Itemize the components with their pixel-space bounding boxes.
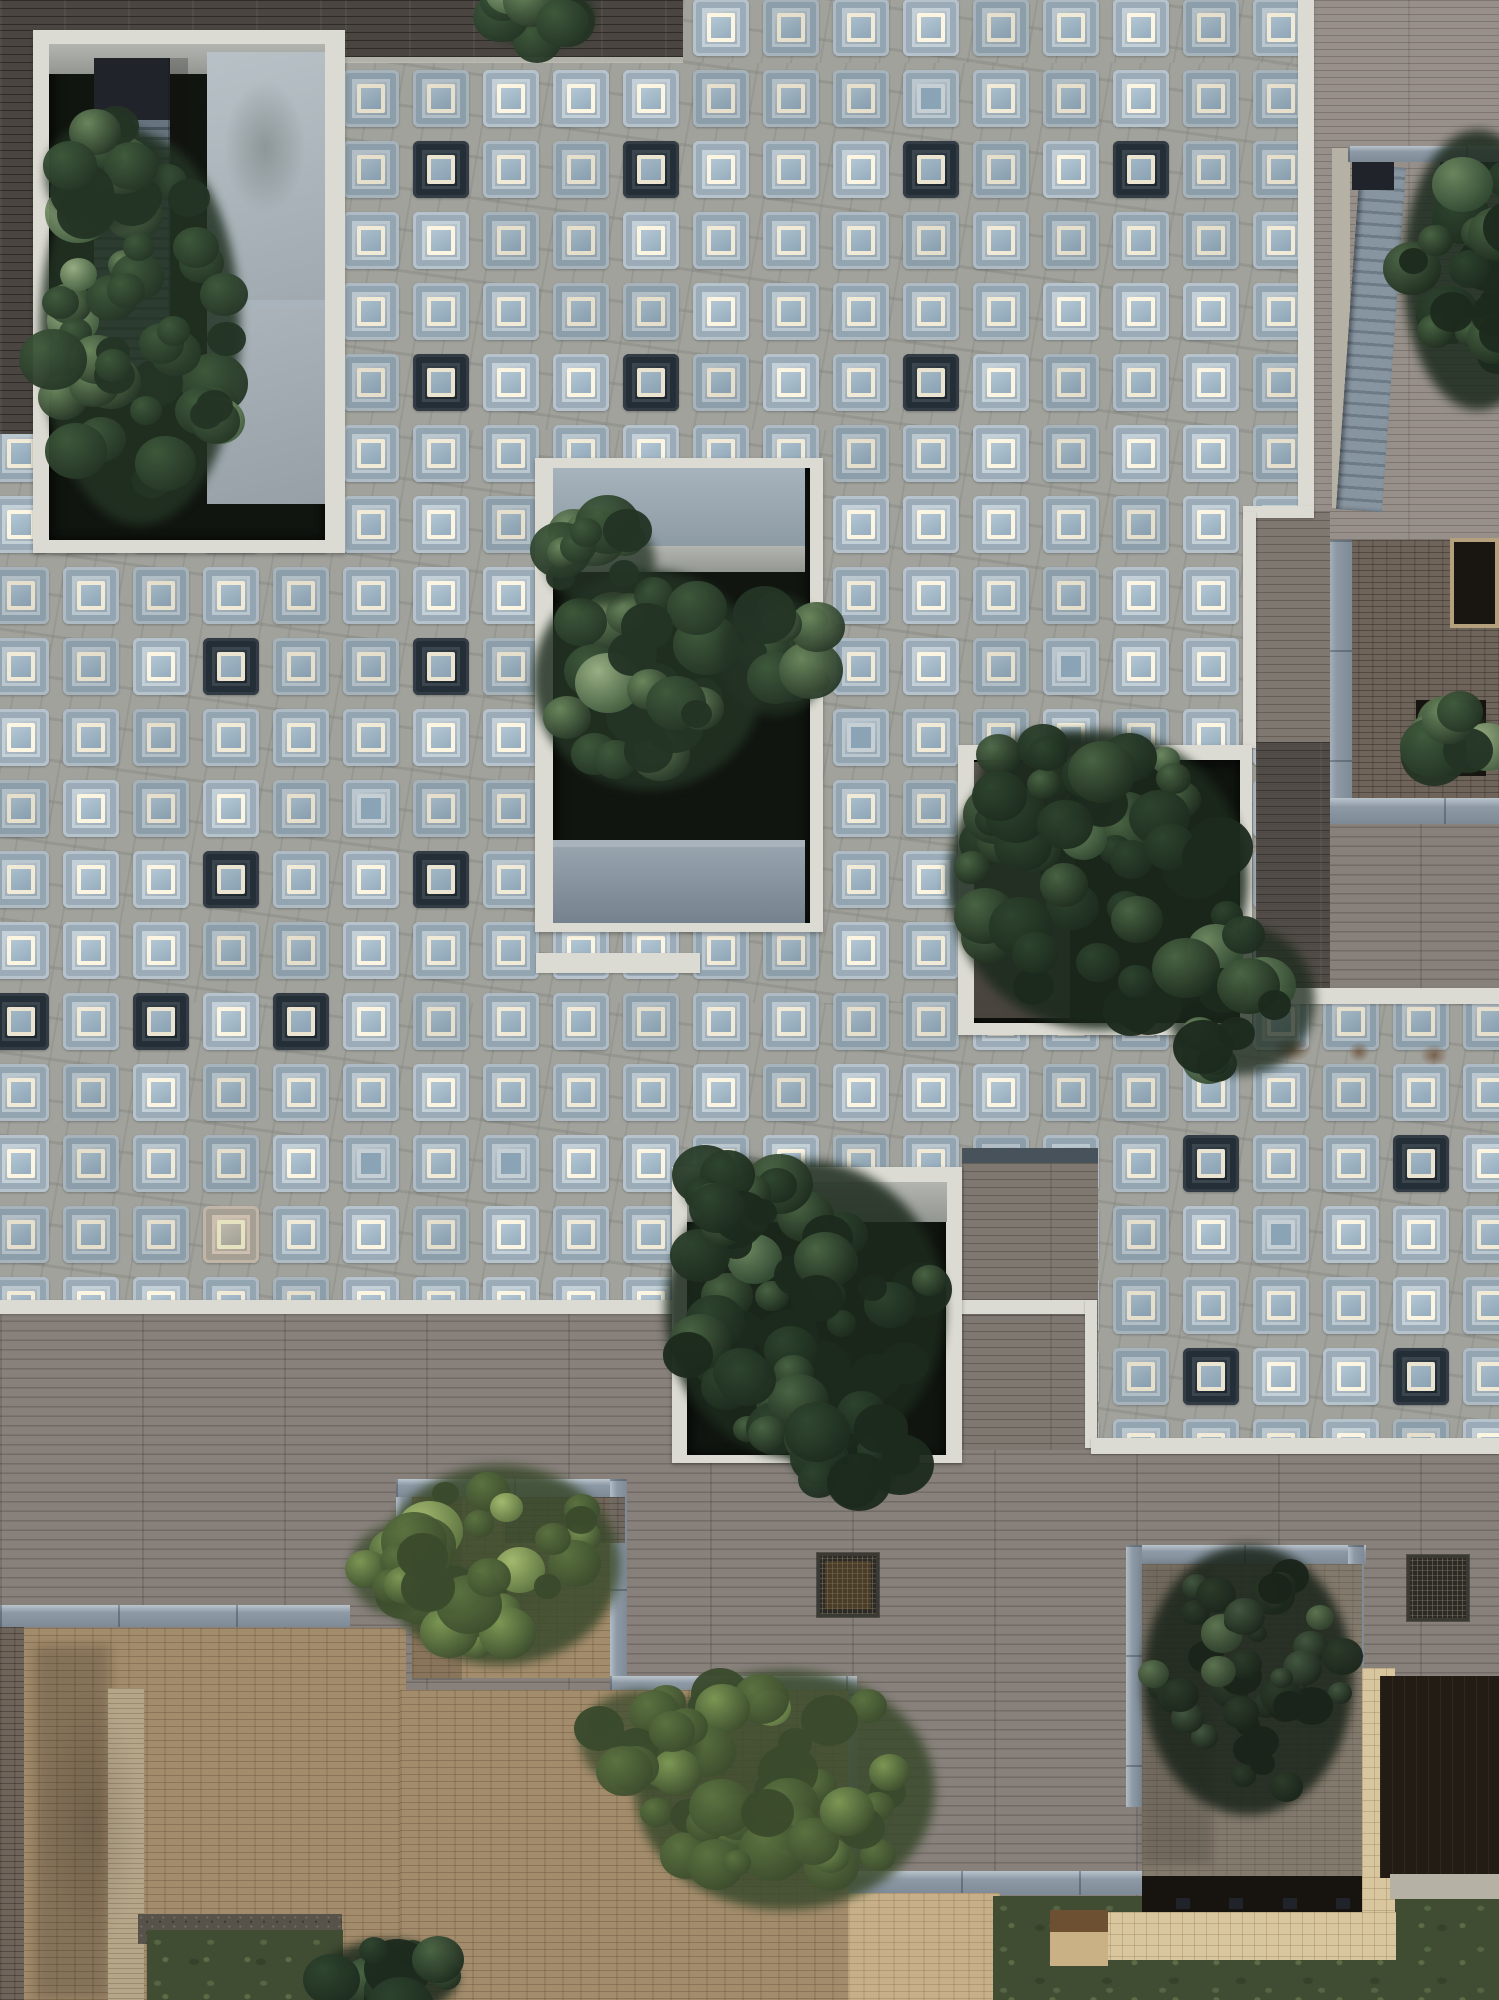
skylight-tile (973, 283, 1029, 340)
skylight-tile (623, 993, 679, 1003)
shadow-tree-center (600, 1680, 940, 1930)
skylight-tile (63, 993, 119, 1003)
soil-stain-3 (1420, 1044, 1448, 1066)
skylight-tile (483, 638, 539, 695)
glass-roof-top (553, 468, 805, 546)
skylight-tile (203, 1206, 259, 1263)
planter-drain-3 (1283, 1898, 1297, 1909)
skylight-tile (553, 354, 609, 411)
parapet-rightpatch-bottom (1091, 1438, 1499, 1454)
skylight-tile (345, 354, 399, 411)
stair-right-rail (1348, 146, 1499, 162)
skylight-tile (345, 70, 399, 127)
skylight-tile (203, 567, 259, 624)
skylight-tile (1253, 0, 1300, 56)
skylight-tile (1113, 1135, 1169, 1192)
skylight-tile (1183, 283, 1239, 340)
skylight-tile (343, 993, 399, 1003)
wall-band (687, 1182, 947, 1222)
skylight-tile (1043, 70, 1099, 127)
skylight-tile (1463, 1135, 1499, 1192)
skylight-tile (833, 430, 889, 482)
skylight-tile (203, 993, 259, 1003)
skylight-tile (413, 709, 469, 766)
skylight-tile (833, 922, 889, 979)
skylight-tile (693, 1064, 749, 1121)
skylight-tile (133, 1206, 189, 1263)
skylight-tile (413, 1206, 469, 1263)
skylight-tile (483, 212, 539, 269)
skylight-tile (345, 141, 399, 198)
wall-band (553, 546, 805, 572)
planter-inner-shadow (1142, 1564, 1212, 1864)
skylight-tile (343, 1277, 399, 1302)
skylight-tile (833, 780, 889, 837)
skylight-tile (1393, 1206, 1449, 1263)
grass-bottom-left (147, 1930, 343, 2000)
skylight-tile (483, 922, 539, 979)
stair-landing (94, 58, 170, 120)
skylight-tile (343, 1135, 399, 1192)
skylight-tile (273, 780, 329, 837)
skylight-tile (693, 141, 749, 198)
skylight-tile (903, 141, 959, 198)
skylight-tile (1043, 1064, 1090, 1121)
skylight-tile (1323, 1348, 1379, 1405)
skylight-tile (763, 1003, 819, 1050)
grate-right (1407, 1555, 1469, 1621)
skylight-tile (63, 922, 119, 979)
roof-patch-top (683, 0, 1300, 63)
skylight-tile (1043, 430, 1099, 482)
skylight-tile (203, 709, 259, 766)
skylight-tile (413, 70, 469, 127)
glass-pane-lower (207, 308, 325, 504)
parapet-step-vertical (1085, 1300, 1097, 1448)
skylight-tile (903, 922, 959, 979)
skylight-tile (1183, 141, 1239, 198)
soil-stain-2 (1348, 1042, 1370, 1062)
skylight-tile (413, 780, 469, 837)
skylight-tile (203, 1277, 259, 1302)
skylight-tile (0, 1206, 49, 1263)
skylight-tile (1393, 1348, 1449, 1405)
skylight-tile (345, 212, 399, 269)
skylight-tile (483, 567, 539, 624)
skylight-tile (553, 1135, 609, 1192)
skylight-tile (1043, 638, 1099, 695)
skylight-tile (903, 780, 959, 837)
skylight-tile (63, 1064, 119, 1121)
skylight-tile (553, 1206, 609, 1263)
deck-top-notch (345, 0, 683, 62)
brick-ground-bright (848, 1893, 1000, 2000)
skylight-tile (133, 638, 189, 695)
skylight-tile (343, 1206, 399, 1263)
skylight-tile (833, 141, 889, 198)
skylight-tile (1393, 1003, 1449, 1050)
skylight-tile (833, 0, 889, 56)
skylight-tile (1463, 1064, 1499, 1121)
skylight-tile (1043, 496, 1099, 553)
skylight-tile (763, 212, 819, 269)
skylight-tile (833, 709, 889, 766)
skylight-tile (343, 922, 399, 979)
steel-band-court1-top (396, 1479, 627, 1497)
skylight-tile (553, 283, 609, 340)
skylight-tile (553, 70, 609, 127)
skylight-tile (413, 1277, 469, 1302)
skylight-tile (1183, 354, 1239, 411)
skylight-tile (693, 212, 749, 269)
skylight-tile (203, 638, 259, 695)
stair-flight (94, 120, 170, 402)
skylight-tile (0, 567, 49, 624)
skylight-tile (343, 1003, 399, 1050)
skylight-tile (1183, 1206, 1239, 1263)
skylight-tile (553, 1064, 609, 1121)
skylight-tile (763, 354, 819, 411)
aerial-photograph-canvas (0, 0, 1499, 2000)
skylight-tile (1043, 567, 1099, 624)
skylight-tile (413, 141, 469, 198)
skylight-tile (973, 212, 1029, 269)
skylight-tile (693, 993, 749, 1003)
skylight-tile (273, 1003, 329, 1050)
skylight-tile (483, 1206, 539, 1263)
skylight-tile (1113, 430, 1169, 482)
steel-channel-horizontal (1326, 798, 1499, 824)
skylight-tile (553, 1277, 609, 1302)
coping-horizontal (1098, 1912, 1396, 1960)
skylight-tile (0, 922, 49, 979)
skylight-tile (273, 993, 329, 1003)
skylight-tile (343, 780, 399, 837)
deck-top-left-strip (0, 0, 345, 30)
skylight-tile (63, 1277, 119, 1302)
skylight-tile (345, 283, 399, 340)
skylight-tile (273, 638, 329, 695)
skylight-tile (903, 1003, 959, 1050)
skylight-tile (1183, 1064, 1239, 1121)
skylight-tile (203, 922, 259, 979)
skylight-tile (1043, 141, 1099, 198)
skylight-tile (833, 212, 889, 269)
skylight-tile (623, 212, 679, 269)
grate-center-warm (825, 1561, 871, 1609)
skylight-tile (273, 1206, 329, 1263)
skylight-tile (0, 1064, 49, 1121)
skylight-tile (763, 1064, 819, 1121)
skylight-tile (483, 496, 539, 553)
deck-right-shaded (1256, 742, 1330, 994)
skylight-tile (1393, 1135, 1449, 1192)
skylight-tile (1463, 1277, 1499, 1334)
skylight-tile (903, 638, 959, 695)
shadow-tree-left (370, 1500, 600, 1680)
skylight-tile (483, 1064, 539, 1121)
skylight-tile (833, 70, 889, 127)
skylight-tile (413, 567, 469, 624)
skylight-tile (1090, 1064, 1099, 1121)
skylight-tile (133, 1064, 189, 1121)
skylight-tile (483, 430, 539, 482)
skylight-tile (1183, 212, 1239, 269)
skylight-tile (1253, 430, 1300, 482)
skylight-tile (833, 354, 889, 411)
skylight-tile (343, 709, 399, 766)
soil-stain-1 (1272, 1036, 1312, 1062)
skylight-tile (903, 496, 959, 553)
skylight-tile (903, 354, 959, 411)
skylight-tile (413, 496, 469, 553)
skylight-tile (1463, 1003, 1499, 1050)
roof-skylight-strip (536, 953, 700, 973)
skylight-tile (833, 1003, 889, 1050)
skylight-tile (1113, 567, 1169, 624)
skylight-tile (203, 1003, 259, 1050)
panel-bottom (553, 847, 805, 923)
skylight-tile (273, 709, 329, 766)
skylight-tile (833, 993, 889, 1003)
skylight-tile (1253, 141, 1300, 198)
stair-right-slot-2 (1440, 162, 1499, 184)
skylight-tile (1323, 1135, 1379, 1192)
skylight-tile (1183, 430, 1239, 482)
skylight-tile (623, 70, 679, 127)
parapet-right-inner (1243, 512, 1256, 748)
skylight-tile (1043, 0, 1099, 56)
skylight-tile (1323, 1206, 1379, 1263)
skylight-tile (623, 1135, 679, 1192)
skylight-tile (553, 1003, 609, 1050)
stair-right-slot-1 (1352, 162, 1394, 190)
skylight-tile (623, 1064, 679, 1121)
skylight-tile (413, 851, 469, 908)
skylight-tile (1253, 1277, 1309, 1334)
skylight-tile (693, 354, 749, 411)
bench-box-top (1050, 1910, 1108, 1932)
skylight-tile (553, 212, 609, 269)
panel-edge (553, 840, 805, 847)
planter-drain-1 (1176, 1898, 1190, 1909)
skylight-tile (343, 430, 399, 482)
skylight-tile (1113, 638, 1169, 695)
skylight-tile (63, 1003, 119, 1050)
skylight-tile (63, 780, 119, 837)
skylight-tile (203, 1135, 259, 1192)
skylight-tile (483, 1135, 539, 1192)
skylight-tile (763, 0, 819, 56)
deck-top-edge-line (345, 57, 683, 63)
skylight-tile (1043, 283, 1099, 340)
skylight-tile (1183, 638, 1239, 695)
skylight-tile (413, 922, 469, 979)
skylight-tile (1323, 1277, 1379, 1334)
skylight-tile (413, 430, 469, 482)
skylight-tile (833, 851, 889, 908)
skylight-tile (1113, 1064, 1169, 1121)
skylight-tile (623, 1003, 679, 1050)
skylight-tile (973, 0, 1029, 56)
skylight-tile (63, 638, 119, 695)
skylight-tile (203, 780, 259, 837)
glass-reflection (213, 62, 317, 232)
skylight-tile (1183, 567, 1239, 624)
skylight-tile (1113, 141, 1169, 198)
glass-panel-left (974, 762, 1070, 1018)
skylight-tile (1113, 212, 1169, 269)
skylight-tile (973, 141, 1029, 198)
skylight-tile (1253, 283, 1300, 340)
skylight-tile (623, 283, 679, 340)
skylight-tile (273, 851, 329, 908)
skylight-tile (343, 638, 399, 695)
skylight-tile (1113, 70, 1169, 127)
fascia-courtyard-right (962, 1148, 1098, 1163)
skylight-tile (0, 851, 49, 908)
skylight-tile (133, 993, 189, 1003)
skylight-tile (763, 993, 819, 1003)
skylight-tile (973, 496, 1029, 553)
skylight-tile (1183, 1348, 1239, 1405)
skylight-tile (0, 1135, 49, 1192)
skylight-tile (763, 141, 819, 198)
skylight-tile (343, 496, 399, 553)
skylight-tile (413, 993, 469, 1003)
skylight-tile (413, 212, 469, 269)
skylight-tile (133, 1135, 189, 1192)
skylight-tile (273, 567, 329, 624)
skylight-tile (1253, 1135, 1309, 1192)
shadow-bottom-left (20, 1640, 160, 2000)
skylight-tile (973, 354, 1029, 411)
planter-rim-top (1126, 1545, 1366, 1564)
skylight-tile (483, 780, 539, 837)
skylight-tile (133, 851, 189, 908)
skylight-tile (0, 1003, 49, 1050)
skylight-tile (903, 993, 959, 1003)
skylight-tile (973, 70, 1029, 127)
skylight-tile (623, 1206, 679, 1263)
skylight-tile (1043, 212, 1099, 269)
skylight-tile (1113, 496, 1169, 553)
skylight-tile (973, 638, 1029, 695)
glass-mullion (207, 300, 325, 308)
skylight-tile (483, 354, 539, 411)
skylight-tile (903, 851, 959, 908)
skylight-tile (973, 1064, 1029, 1121)
roof-patch-right (1090, 1003, 1499, 1450)
skylight-tile (483, 851, 539, 908)
skylight-tile (903, 70, 959, 127)
tree-foliage-clump (798, 1461, 839, 1498)
skylight-tile (833, 638, 889, 695)
skylight-tile (0, 638, 49, 695)
parapet-right-upper (1298, 0, 1314, 516)
skylight-tile (63, 1206, 119, 1263)
skylight-tile (1463, 1206, 1499, 1263)
skylight-tile (693, 1003, 749, 1050)
skylight-tile (903, 283, 959, 340)
stone-curb (1390, 1874, 1499, 1899)
parapet-right-lower (1250, 988, 1499, 1004)
skylight-tile (1183, 496, 1239, 553)
skylight-tile (203, 1064, 259, 1121)
skylight-tile (63, 851, 119, 908)
skylight-tile (343, 1064, 399, 1121)
skylight-tile (133, 1277, 189, 1302)
skylight-tile (1393, 1064, 1449, 1121)
skylight-tile (273, 922, 329, 979)
deck-left-strip (0, 30, 34, 434)
skylight-tile (273, 1064, 329, 1121)
skylight-tile (693, 70, 749, 127)
skylight-tile (833, 496, 889, 553)
skylight-tile (693, 283, 749, 340)
skylight-tile (1253, 1064, 1309, 1121)
skylight-tile (133, 922, 189, 979)
skylight-tile (1113, 1206, 1169, 1263)
skylight-tile (903, 709, 959, 766)
roof-patch-upper (345, 63, 1300, 430)
skylight-tile (1393, 1277, 1449, 1334)
skylight-tile (553, 993, 609, 1003)
skylight-tile (1043, 354, 1099, 411)
skylight-tile (903, 430, 959, 482)
skylight-tile (413, 638, 469, 695)
skylight-tile (693, 0, 749, 56)
skylight-tile (343, 567, 399, 624)
skylight-tile (413, 354, 469, 411)
skylight-tile (1253, 212, 1300, 269)
skylight-tile (1113, 1277, 1169, 1334)
skylight-tile (133, 567, 189, 624)
skylight-tile (1253, 354, 1300, 411)
skylight-tile (203, 851, 259, 908)
tree-foliage-clump (831, 1466, 878, 1508)
skylight-tile (63, 1135, 119, 1192)
skylight-tile (1113, 1348, 1169, 1405)
skylight-tile (763, 70, 819, 127)
skylight-tile (483, 141, 539, 198)
skylight-tile (1183, 1277, 1239, 1334)
skylight-tile (623, 141, 679, 198)
skylight-tile (343, 851, 399, 908)
skylight-tile (903, 1064, 959, 1121)
skylight-tile (1183, 1135, 1239, 1192)
skylight-tile (833, 283, 889, 340)
skylight-tile (973, 567, 1029, 624)
planter-rim-left (1126, 1545, 1142, 1807)
skylight-tile (1183, 0, 1239, 56)
skylight-tile (1183, 70, 1239, 127)
skylight-tile (483, 709, 539, 766)
skylight-tile (1113, 354, 1169, 411)
skylight-tile (1113, 283, 1169, 340)
skylight-tile (63, 709, 119, 766)
skylight-tile (413, 1064, 469, 1121)
skylight-tile (133, 709, 189, 766)
skylight-tile (133, 780, 189, 837)
skylight-tile (903, 212, 959, 269)
skylight-tile (413, 1003, 469, 1050)
dark-deck-bottom-right (1380, 1676, 1499, 1878)
stair-side-shadow (168, 58, 188, 402)
planter-dark-strip (1142, 1876, 1362, 1914)
skylight-tile (273, 1277, 329, 1302)
skylight-tile (1253, 70, 1300, 127)
